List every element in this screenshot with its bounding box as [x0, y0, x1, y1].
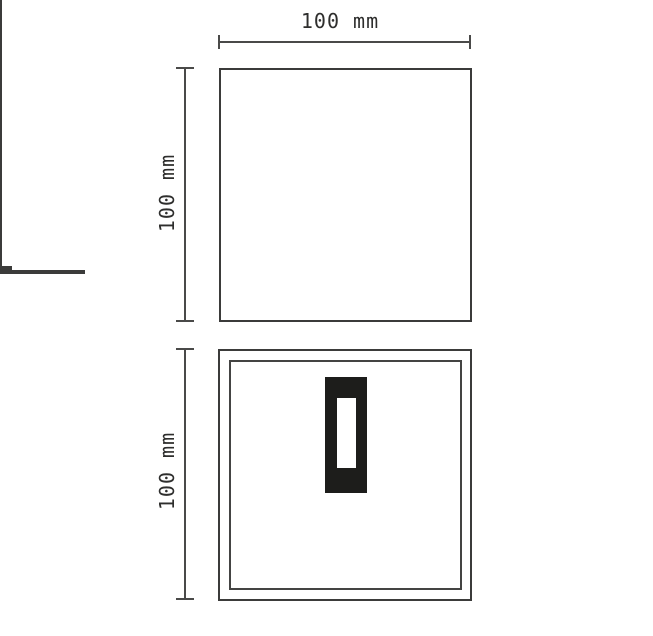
dimension-label: 100 mm [155, 421, 179, 521]
dimension-tick [176, 320, 194, 322]
dimension-line [184, 68, 186, 322]
dimension-tick [218, 35, 220, 49]
top-view-square [219, 68, 472, 322]
right-panel-line [0, 133, 2, 266]
dimension-tick [176, 598, 194, 600]
dimension-tick [176, 67, 194, 69]
left-panel-line [0, 0, 2, 133]
dimension-label: 100 mm [290, 9, 390, 33]
led-module [325, 377, 367, 493]
dimension-line [184, 349, 186, 600]
dimension-line [219, 41, 471, 43]
divider-line-right [0, 272, 85, 274]
led-aperture [337, 398, 356, 468]
dimension-tick [176, 348, 194, 350]
dimension-label: 100 mm [155, 143, 179, 243]
drawing-canvas: 100 mm 100 mm 100 mm [0, 0, 653, 636]
dimension-tick [469, 35, 471, 49]
